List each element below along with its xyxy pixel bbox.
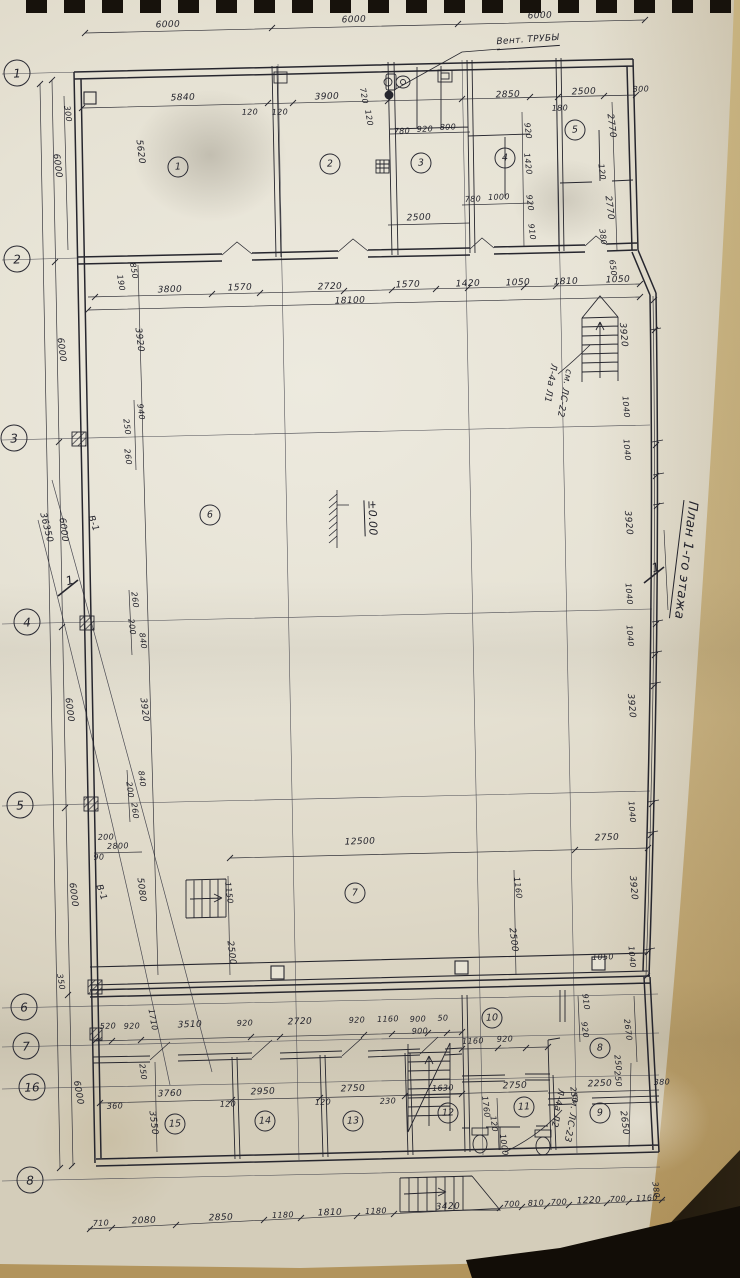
room-number-bubble-12: 12 xyxy=(437,1102,459,1124)
room-number-bubble-8: 8 xyxy=(589,1037,611,1059)
room-number-bubble-9: 9 xyxy=(589,1102,611,1124)
room-number-bubble-3: 3 xyxy=(410,152,432,174)
room-number-bubble-10: 10 xyxy=(481,1007,503,1029)
binding-perforations xyxy=(26,0,740,13)
room-number-bubble-2: 2 xyxy=(319,153,341,175)
room-number-bubble-11: 11 xyxy=(513,1096,535,1118)
room-number-bubble-14: 14 xyxy=(254,1110,276,1132)
room-number-bubble-15: 15 xyxy=(164,1113,186,1135)
room-number-bubble-5: 5 xyxy=(564,119,586,141)
room-numbers-layer: 123456789101112131415 xyxy=(0,0,740,1278)
photo-stage: 600060006000Вент. ТРУБЫ58401201203900720… xyxy=(0,0,740,1278)
room-number-bubble-7: 7 xyxy=(344,882,366,904)
room-number-bubble-1: 1 xyxy=(167,156,189,178)
room-number-bubble-13: 13 xyxy=(342,1110,364,1132)
room-number-bubble-6: 6 xyxy=(199,504,221,526)
room-number-bubble-4: 4 xyxy=(494,147,516,169)
